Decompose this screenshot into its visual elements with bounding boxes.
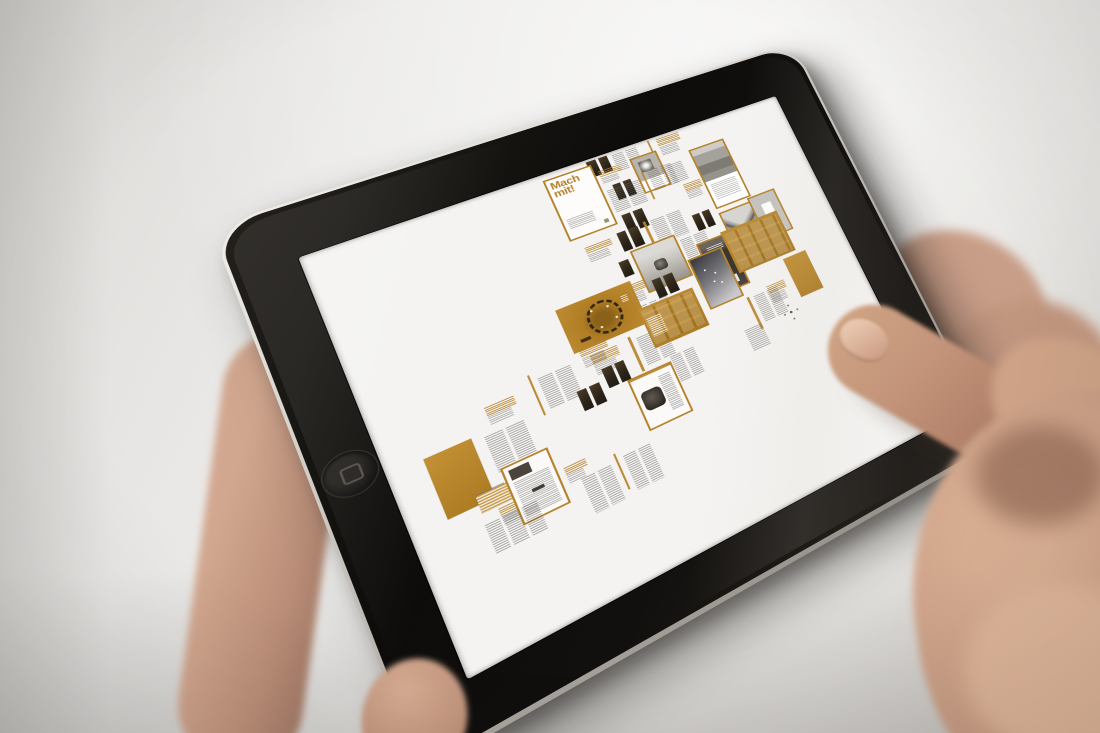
tablet-screen[interactable]: Mach mit! xyxy=(298,96,939,680)
doc-tblock xyxy=(537,365,583,410)
doc-caption xyxy=(584,238,620,265)
doc-mountain xyxy=(688,138,751,209)
poster-title: Mach mit! xyxy=(545,166,598,200)
home-button-icon xyxy=(338,462,365,486)
document-canvas: Mach mit! xyxy=(298,96,939,680)
doc-pair xyxy=(692,209,716,231)
doc-tblock xyxy=(623,444,665,490)
doc-tblock xyxy=(484,501,548,556)
photo-scene: Mach mit! xyxy=(0,0,1100,733)
doc-thumb xyxy=(618,259,634,278)
home-button[interactable] xyxy=(316,443,384,505)
doc-pair xyxy=(576,382,607,411)
doc-caption xyxy=(656,132,687,157)
right-hand-crease xyxy=(975,425,1100,525)
doc-tblock xyxy=(744,323,771,352)
